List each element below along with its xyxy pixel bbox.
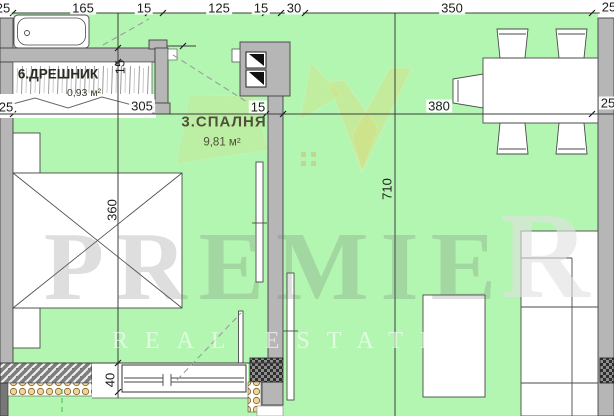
nightstand-bottom (13, 308, 40, 348)
chair (497, 29, 528, 58)
dim-top-125: 125 (206, 2, 232, 15)
opening-below (257, 406, 283, 416)
dim-top-15a: 15 (135, 2, 153, 15)
left-wall (0, 18, 13, 363)
partition-stem (155, 48, 168, 106)
dim-mid-25-right: 25 (599, 97, 614, 110)
floor-plan-drawing (0, 0, 614, 416)
room-area-bedroom: 9,81 м² (203, 137, 240, 149)
partition-foot (153, 103, 170, 114)
bottom-left-wall (0, 383, 8, 416)
middle-wall-foot (262, 382, 283, 405)
dim-mid-380: 380 (426, 100, 452, 113)
dining-table (483, 58, 598, 123)
chair (453, 74, 483, 108)
dim-top-25-right: 25 (600, 1, 614, 14)
dim-vert-15: 15 (114, 60, 127, 74)
chair (556, 29, 587, 58)
sliding-door-living (287, 273, 294, 400)
vent-shaft-block (240, 42, 290, 96)
sliding-door-bedroom (256, 162, 263, 282)
vent-shaft-openings (246, 52, 266, 87)
dim-top-15b: 15 (252, 2, 270, 15)
shaft-notch (232, 49, 240, 62)
dim-vert-40: 40 (104, 373, 117, 387)
insulation-row (8, 383, 92, 396)
sofa (521, 231, 598, 416)
dim-top-25-left: 25 (0, 2, 12, 15)
balcony-door-leaf (239, 311, 244, 363)
dim-mid-15: 15 (249, 101, 267, 114)
dim-top-350: 350 (439, 2, 465, 15)
right-wall (598, 18, 614, 416)
dim-vert-360: 360 (106, 199, 119, 221)
middle-wall (268, 95, 283, 360)
column-block-right (600, 358, 614, 383)
floor-plan: 25 165 15 125 15 30 350 25 25 305 15 380… (0, 0, 614, 416)
nightstand-top (13, 133, 40, 173)
room-area-dressing: 0,93 м² (67, 88, 101, 99)
door-threshold (168, 49, 177, 60)
dim-top-165: 165 (70, 2, 96, 15)
column-block (250, 358, 283, 382)
dim-top-30: 30 (285, 2, 303, 15)
hatched-wall (0, 363, 92, 383)
dim-mid-25-left: 25 (0, 101, 15, 114)
dim-mid-305: 305 (129, 100, 155, 113)
room-label-dressing: 6.ДРЕШНИК (18, 67, 98, 81)
top-wall (0, 48, 155, 62)
room-label-bedroom: 3.СПАЛНЯ (181, 115, 266, 130)
window (122, 365, 246, 392)
coffee-table (423, 295, 485, 397)
dim-vert-710: 710 (381, 178, 394, 200)
